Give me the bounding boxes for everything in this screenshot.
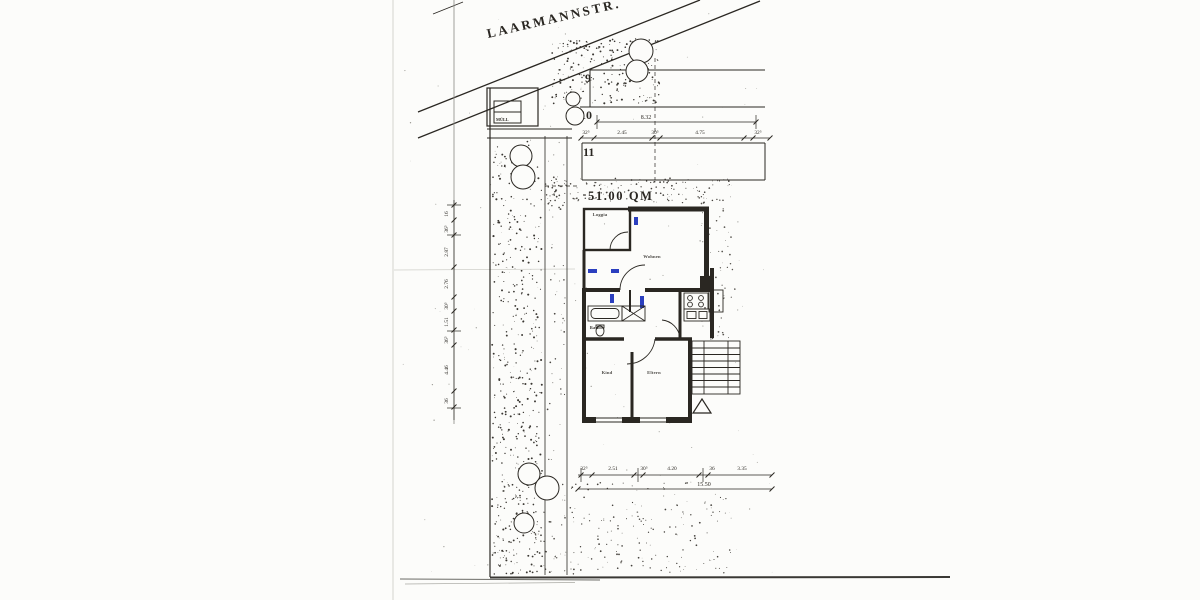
dim-top-seg-1: 32⁵	[582, 130, 589, 136]
floor-plan-walls	[582, 209, 723, 422]
dim-bottom-seg-6: 3.35	[737, 466, 747, 472]
triangle-marker-icon	[693, 399, 711, 413]
dim-bottom-seg-1: 32⁵	[580, 466, 587, 472]
dim-left-seg-4: 2.76	[444, 279, 450, 289]
street-label: LAARMANNSTR.	[485, 0, 622, 41]
floor-plan: Loggia Wohnen Bad Kind Eltern	[582, 209, 740, 422]
blue-door-highlights	[588, 217, 644, 308]
dimension-chain-left: 16 36⁵ 2.87 2.76 30⁵ 1.51 36⁵ 4.46 36	[444, 200, 461, 420]
dimension-chain-top: 8.32 32⁵ 2.45 30⁵ 4.75 32⁵	[579, 115, 773, 141]
room-label-loggia: Loggia	[593, 212, 608, 217]
site-plan-drawing: LAARMANNSTR. MÜLL 9 10 11	[0, 0, 1200, 600]
kitchen-fixtures	[684, 293, 710, 321]
room-labels: Loggia Wohnen Bad Kind Eltern	[590, 212, 661, 375]
site-boundary-lines	[454, 0, 578, 577]
dim-left-seg-9: 36	[444, 398, 450, 404]
parcel-11-label: 11	[583, 145, 594, 159]
dim-left-seg-5: 30⁵	[444, 302, 450, 309]
dim-left-seg-6: 1.51	[444, 317, 450, 327]
room-label-wohnen: Wohnen	[643, 254, 661, 259]
dim-top-total: 8.32	[641, 115, 652, 121]
scanned-site-plan-sheet: LAARMANNSTR. MÜLL 9 10 11	[0, 0, 1200, 600]
dim-bottom-seg-4: 4.20	[667, 466, 677, 472]
ground-stipple-texture	[403, 13, 773, 574]
dim-left-seg-7: 36⁵	[444, 336, 450, 343]
dim-left-seg-3: 2.87	[444, 247, 450, 257]
muell-label: MÜLL	[496, 117, 509, 122]
parcel-lines: 9 10 11	[580, 58, 765, 180]
bathroom-fixtures	[588, 306, 645, 336]
dim-bottom-total: 15.50	[697, 482, 711, 488]
muell-enclosure: MÜLL	[487, 88, 572, 138]
dim-top-seg-4: 4.75	[695, 130, 705, 136]
dim-bottom-seg-5: 36	[709, 466, 715, 472]
dim-left-seg-8: 4.46	[444, 365, 450, 375]
dim-top-seg-2: 2.45	[617, 130, 627, 136]
door-swing-arcs	[610, 232, 680, 364]
room-label-bad: Bad	[590, 325, 599, 330]
dim-bottom-seg-3: 30⁵	[640, 466, 647, 472]
dim-top-seg-5: 32⁵	[754, 130, 761, 136]
dim-top-seg-3: 30⁵	[651, 130, 658, 136]
dimension-chain-bottom: 32⁵ 2.51 30⁵ 4.20 36 3.35 15.50	[576, 466, 775, 492]
area-label: 51.00 QM	[588, 189, 654, 203]
parcel-9-label: 9	[585, 71, 591, 85]
room-label-kind: Kind	[602, 370, 613, 375]
room-label-eltern: Eltern	[647, 370, 661, 375]
dim-left-seg-1: 16	[444, 211, 450, 217]
staircase	[692, 341, 740, 394]
dim-bottom-seg-2: 2.51	[608, 466, 618, 472]
dim-left-seg-2: 36⁵	[444, 225, 450, 232]
